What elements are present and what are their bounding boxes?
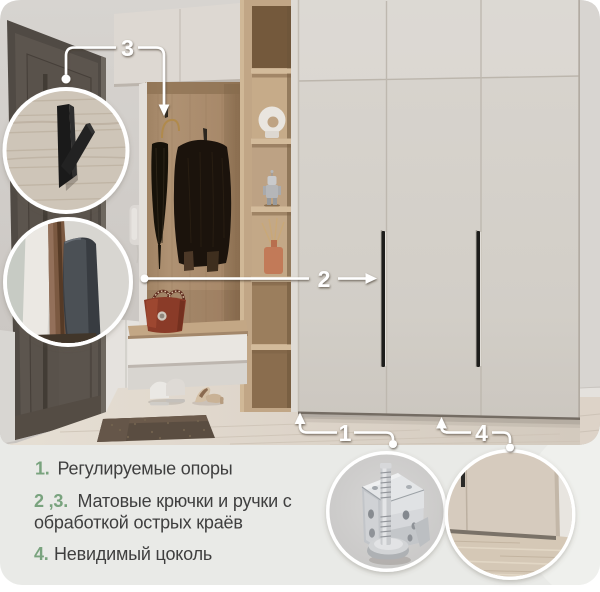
svg-text:4: 4	[475, 420, 488, 446]
svg-text:2 ,3.: 2 ,3.	[34, 491, 68, 511]
svg-text:2: 2	[318, 266, 331, 292]
svg-text:3: 3	[121, 35, 134, 61]
svg-text:4.: 4.	[34, 544, 49, 564]
svg-text:Регулируемые опоры: Регулируемые опоры	[58, 459, 233, 479]
svg-text:1.: 1.	[35, 459, 50, 479]
svg-text:1: 1	[339, 420, 352, 446]
svg-text:обработкой острых краёв: обработкой острых краёв	[34, 513, 243, 533]
svg-text:Матовые крючки и ручки с: Матовые крючки и ручки с	[78, 491, 292, 511]
svg-text:Невидимый цоколь: Невидимый цоколь	[54, 544, 212, 564]
